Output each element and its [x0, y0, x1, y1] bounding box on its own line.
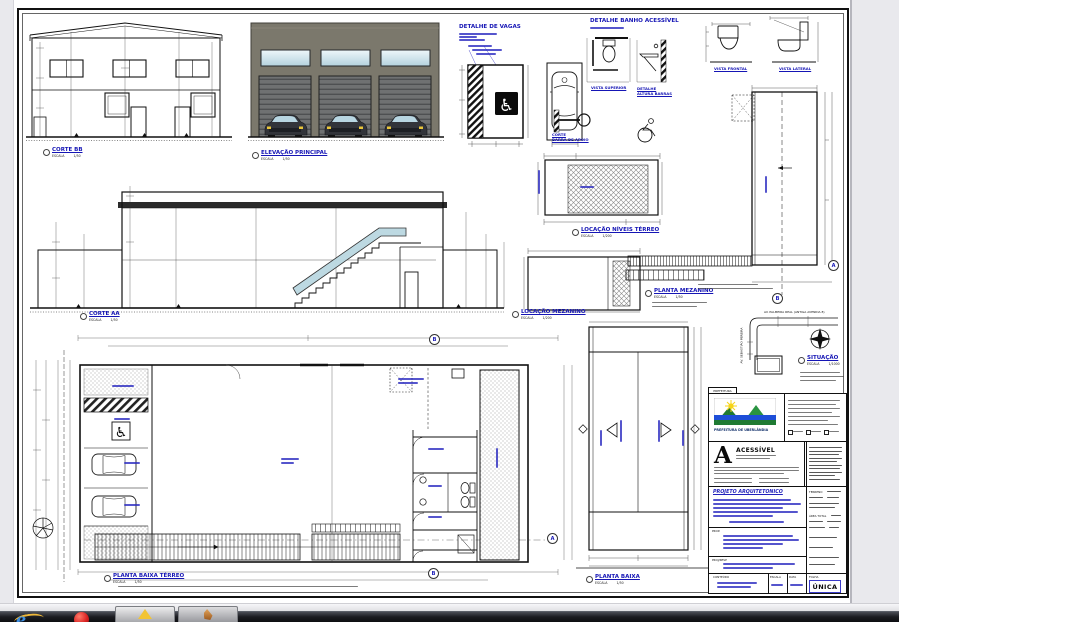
view-marker-circle — [104, 575, 111, 582]
text-line — [827, 491, 841, 492]
vista-lateral-label: VISTA LATERAL — [779, 67, 811, 71]
elevacao-principal-drawing — [248, 20, 444, 148]
text-line — [398, 382, 418, 384]
viewer-right-margin — [852, 0, 899, 611]
planta-baixa-terreo-drawing: ♿ — [28, 330, 584, 586]
locacao-mezanino-label: LOCAÇÃO MEZANINO ESCALA1/200 — [512, 310, 586, 320]
text-line — [723, 563, 795, 565]
text-line — [788, 424, 838, 425]
text-line — [790, 584, 803, 586]
text-line — [831, 515, 841, 516]
view-scale: ESCALA1/200 — [581, 235, 659, 238]
text-line — [809, 468, 840, 469]
section-marker-b-top: B — [429, 334, 440, 345]
vista-superior-label: VISTA SUPERIOR — [591, 86, 626, 90]
view-scale: ESCALA1/50 — [595, 582, 640, 585]
text-line — [793, 431, 803, 432]
roof-slope-label — [658, 420, 660, 442]
text-line — [114, 418, 130, 420]
view-marker-circle — [512, 311, 519, 318]
text-line — [652, 302, 707, 303]
text-line — [590, 27, 624, 29]
view-title: CORTE AA — [89, 312, 120, 318]
text-line — [713, 503, 801, 505]
text-line — [788, 412, 832, 413]
text-line — [809, 479, 840, 480]
view-marker-circle — [252, 152, 259, 159]
yellow-triangle-icon — [138, 609, 152, 619]
text-line — [736, 455, 776, 456]
planta-mezanino-drawing — [626, 252, 756, 286]
view-title: ELEVAÇÃO PRINCIPAL — [261, 151, 327, 157]
text-line — [652, 306, 697, 307]
text-line — [759, 478, 789, 479]
stair-section — [293, 228, 443, 308]
text-line — [829, 431, 839, 432]
viewer-left-margin — [0, 0, 14, 611]
text-line — [124, 462, 140, 464]
text-line — [827, 497, 839, 498]
text-line — [809, 461, 837, 462]
text-line — [729, 521, 784, 523]
text-line — [723, 543, 783, 545]
accessible-parking-icon: ♿ — [495, 92, 518, 116]
text-line — [459, 33, 497, 35]
planta-baixa-drawing — [580, 320, 710, 575]
accessible-space-icon: ♿ — [112, 422, 130, 441]
text-line — [788, 408, 840, 409]
text-line — [459, 36, 477, 38]
text-line — [717, 582, 757, 584]
text-line — [736, 458, 770, 459]
text-line — [800, 376, 844, 377]
view-title: SITUAÇÃO — [807, 356, 840, 362]
situacao-label: SITUAÇÃO ESCALA1/1000 — [798, 356, 840, 366]
text-line — [809, 458, 842, 459]
text-line — [829, 527, 839, 528]
view-scale: ESCALA1/50 — [261, 158, 327, 161]
section-marker-b-bottom: B — [428, 568, 439, 579]
view-title: PLANTA BAIXA — [595, 575, 640, 581]
text-line — [428, 485, 442, 487]
situacao-drawing — [738, 312, 846, 386]
prop-label: PROP. — [712, 529, 720, 533]
terreno-label: TERRENO — [809, 490, 822, 494]
view-marker-circle — [645, 290, 652, 297]
svg-text:♿: ♿ — [499, 96, 514, 116]
text-line — [788, 404, 836, 405]
street-name-vertical: AV. SEBASTIÃO PEREIRA — [741, 323, 744, 369]
view-scale: ESCALA1/50 — [89, 319, 120, 322]
text-line — [809, 475, 835, 476]
text-line — [698, 288, 773, 289]
view-marker-circle — [586, 576, 593, 583]
detalhe-vagas-heading: DETALHE DE VAGAS — [459, 25, 521, 31]
text-line — [713, 499, 791, 501]
text-line — [723, 535, 793, 537]
text-line — [714, 473, 784, 474]
elevacao-principal-label: ELEVAÇÃO PRINCIPAL ESCALA1/50 — [252, 151, 327, 161]
text-line — [809, 547, 833, 548]
agency-name: PREFEITURA DE UBERLÂNDIA — [714, 428, 768, 432]
folha-label: FOLHA — [809, 575, 818, 579]
text-line — [788, 416, 840, 417]
sheet-number: ÚNICA — [809, 580, 841, 593]
roof-edge-label — [600, 430, 602, 446]
locacao-terreo-label: LOCAÇÃO NÍVEIS TÉRREO ESCALA1/200 — [572, 228, 659, 238]
orange-app-icon — [204, 609, 213, 620]
text-line — [580, 186, 594, 188]
roof-edge-label — [682, 430, 684, 446]
view-title: PLANTA MEZANINO — [654, 289, 713, 295]
toilet-plan-icon — [461, 483, 475, 508]
escala-label: ESCALA — [770, 575, 781, 579]
text-line — [759, 482, 789, 483]
text-line — [713, 511, 798, 513]
text-line — [714, 467, 799, 468]
text-line — [788, 420, 828, 421]
page-edge-shadow — [850, 0, 852, 611]
site-plan-vertical-label — [765, 176, 767, 193]
text-line — [809, 451, 842, 452]
view-marker-circle — [572, 229, 579, 236]
text-line — [809, 564, 835, 565]
text-line — [811, 431, 821, 432]
toilet-views-drawing — [704, 12, 824, 68]
yellow-triangle-app-button[interactable] — [115, 606, 175, 622]
detalhe-banho-heading: DETALHE BANHO ACESSÍVEL — [590, 19, 679, 25]
text-line — [809, 454, 839, 455]
view-scale: ESCALA1/50 — [113, 581, 184, 584]
view-marker-circle — [80, 313, 87, 320]
title-block: PREFEITURA DE UBERLÂNDIA A ACESSÍVEL — [708, 393, 847, 594]
locacao-terreo-vertical-label — [538, 170, 540, 194]
internet-explorer-icon[interactable]: e — [16, 610, 52, 622]
svg-text:♿: ♿ — [115, 425, 128, 441]
planta-mezanino-label: PLANTA MEZANINO ESCALA1/50 — [645, 289, 713, 299]
text-line — [714, 482, 752, 483]
text-line — [398, 378, 424, 380]
text-line — [809, 521, 823, 522]
wheelchair-transfer-icon — [638, 119, 655, 142]
right-strip-vertical-label — [496, 448, 498, 468]
text-line — [800, 372, 840, 373]
corte-barra-sub: BARRA DE APOIO — [552, 138, 589, 142]
text-line — [124, 504, 140, 506]
text-line — [698, 284, 758, 285]
text-line — [809, 537, 837, 538]
text-line — [428, 516, 442, 518]
text-line — [281, 462, 294, 464]
toilet-front-icon — [710, 26, 752, 62]
view-title: PLANTA BAIXA TÉRREO — [113, 574, 184, 580]
view-title: LOCAÇÃO MEZANINO — [521, 310, 586, 316]
text-line — [827, 521, 841, 522]
text-line — [809, 507, 835, 508]
text-line — [713, 515, 773, 517]
corte-aa-drawing — [26, 182, 510, 322]
section-marker-b-site: B — [772, 293, 783, 304]
text-line — [809, 465, 842, 466]
corte-bb-label: CORTE BB ESCALA1/50 — [43, 148, 83, 158]
uberlandia-flag-logo — [714, 398, 776, 425]
planta-baixa-label: PLANTA BAIXA ESCALA1/50 — [586, 575, 640, 585]
view-title: CORTE BB — [52, 148, 83, 154]
north-compass-icon — [809, 328, 831, 350]
note-line — [118, 586, 358, 587]
remote-desktop-screen: CORTE BB ESCALA1/50 — [0, 0, 1092, 622]
text-line — [809, 472, 842, 473]
text-line — [723, 539, 799, 541]
detalhe-altura-sub: ALTURA BARRAS — [637, 92, 672, 96]
car-icon — [265, 115, 427, 138]
view-scale: ESCALA1/50 — [52, 155, 83, 158]
text-line — [809, 557, 839, 558]
area-total-label: ÁREA TOTAL — [809, 514, 826, 518]
orange-app-button[interactable] — [178, 606, 238, 622]
accessivel-stamp-title: ACESSÍVEL — [736, 447, 775, 454]
text-line — [714, 478, 752, 479]
text-line — [112, 385, 134, 387]
text-line — [809, 497, 823, 498]
view-scale: ESCALA1/1000 — [807, 363, 840, 366]
section-marker-a-site: A — [828, 260, 839, 271]
text-line — [281, 458, 299, 460]
text-line — [809, 503, 839, 504]
accessivel-stamp-letter: A — [714, 444, 732, 467]
project-title: PROJETO ARQUITETONICO — [713, 490, 783, 495]
text-line — [713, 507, 783, 509]
view-marker-circle — [798, 357, 805, 364]
view-title: LOCAÇÃO NÍVEIS TÉRREO — [581, 228, 659, 234]
text-line — [809, 527, 825, 528]
red-orb-app-icon[interactable] — [74, 612, 89, 622]
text-line — [800, 380, 836, 381]
view-scale: ESCALA1/200 — [521, 317, 586, 320]
view-marker-circle — [43, 149, 50, 156]
text-line — [771, 584, 783, 586]
text-line — [714, 470, 799, 471]
conteudo-label: CONTEÚDO — [713, 575, 729, 579]
text-line — [788, 400, 840, 401]
section-marker-a-plan: A — [547, 533, 558, 544]
text-line — [809, 447, 842, 448]
text-line — [717, 586, 751, 588]
view-scale: ESCALA1/50 — [654, 296, 713, 299]
corte-bb-drawing — [26, 18, 234, 142]
text-line — [428, 448, 444, 450]
roof-slope-label — [620, 420, 622, 442]
resp-label: PROJ/RESP — [712, 558, 727, 562]
corte-aa-label: CORTE AA ESCALA1/50 — [80, 312, 120, 322]
text-line — [723, 547, 763, 549]
text-line — [723, 567, 773, 569]
data-label: DATA — [789, 575, 796, 579]
vista-frontal-label: VISTA FRONTAL — [714, 67, 747, 71]
planta-baixa-terreo-label: PLANTA BAIXA TÉRREO ESCALA1/50 — [104, 574, 184, 584]
